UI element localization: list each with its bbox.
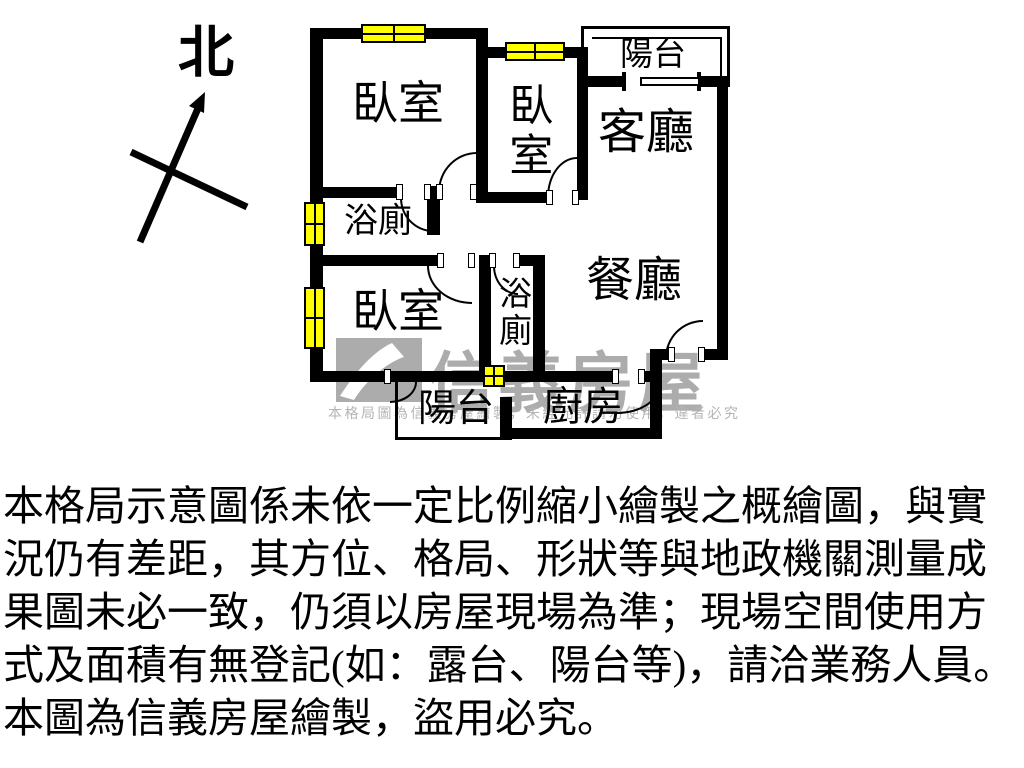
wall-bath2-right: [533, 255, 545, 382]
disclaimer-line-2: 況仍有差距，其方位、格局、形狀等與地政機關測量成: [3, 533, 1023, 586]
disclaimer-block: 本格局示意圖係未依一定比例縮小繪製之概繪圖，與實 況仍有差距，其方位、格局、形狀…: [3, 480, 1023, 745]
north-arrow-icon: [115, 80, 265, 255]
disclaimer-line-3: 果圖未必一致，仍須以房屋現場為準；現場空間使用方: [3, 586, 1023, 639]
window-bedroom3-left: [304, 287, 325, 349]
sliding-door-panel: [640, 77, 700, 86]
room-label-balcony-top: 陽台: [620, 38, 686, 73]
wall-outer-right: [717, 76, 728, 360]
room-label-bath1: 浴廁: [344, 204, 412, 240]
wall-dining-bottom-b: [701, 349, 728, 360]
wall-bath2-left: [479, 255, 491, 382]
wall-balcony-bottom-left: [577, 76, 625, 87]
window-bath1-left: [304, 202, 325, 246]
jamb: [437, 253, 444, 268]
disclaimer-line-5: 本圖為信義房屋繪製，盜用必究。: [3, 692, 1023, 745]
window-bedroom1-top: [361, 24, 426, 43]
room-label-bath2: 浴廁: [494, 276, 529, 371]
room-label-balcony-bottom: 陽台: [418, 390, 494, 430]
disclaimer-line-4: 式及面積有無登記(如：露台、陽台等)，請洽業務人員。: [3, 639, 1023, 692]
wall-living-left: [577, 47, 588, 200]
room-label-kitchen: 廚房: [543, 386, 623, 428]
north-label: 北: [178, 25, 234, 84]
wall-bedroom1-bottom: [310, 187, 402, 198]
wall-hall-bottom: [310, 255, 442, 266]
jamb: [424, 184, 431, 200]
jamb: [468, 253, 475, 268]
wall-bottom-main: [310, 371, 618, 382]
disclaimer-line-1: 本格局示意圖係未依一定比例縮小繪製之概繪圖，與實: [3, 480, 1023, 533]
room-label-dining: 餐廳: [586, 256, 682, 306]
room-label-living: 客廳: [598, 108, 694, 158]
room-label-bedroom1: 臥室: [352, 80, 444, 128]
wall-kitchen-partition: [500, 397, 512, 439]
jamb: [470, 184, 477, 200]
jamb: [436, 184, 443, 200]
jamb: [384, 369, 391, 384]
floorplan-page: 北 信義房屋 本格局圖為信義房屋繪製，未經允許請勿使用，違者必究: [0, 0, 1024, 768]
jamb: [572, 190, 579, 205]
jamb: [513, 253, 520, 268]
jamb: [668, 347, 675, 362]
sliding-door-jamb-left: [622, 72, 626, 91]
wall-kitchen-bottom: [510, 428, 662, 439]
watermark-notice: 本格局圖為信義房屋繪製，未經允許請勿使用，違者必究: [328, 403, 741, 423]
window-bedroom2-top: [505, 42, 565, 61]
jamb: [638, 369, 645, 384]
jamb: [396, 184, 403, 200]
jamb: [612, 369, 619, 384]
jamb: [698, 347, 705, 362]
room-label-bedroom2: 臥室: [503, 82, 549, 212]
jamb: [489, 253, 496, 268]
room-label-bedroom3: 臥室: [352, 288, 444, 336]
